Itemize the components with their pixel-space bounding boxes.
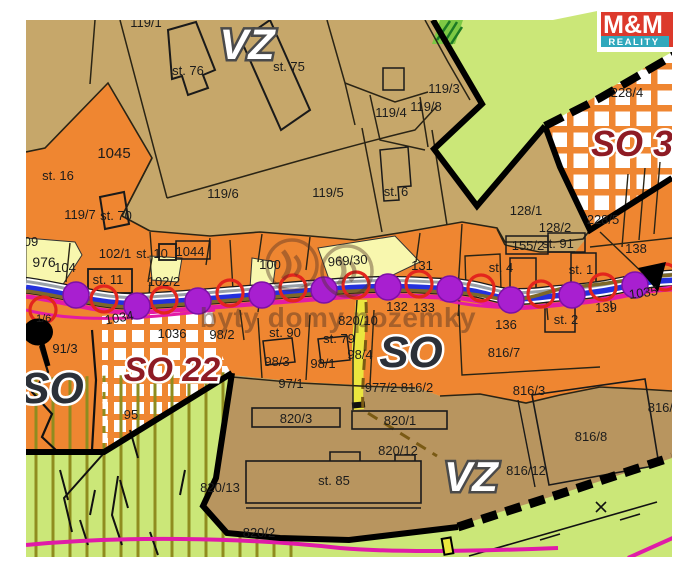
svg-text:139: 139 — [595, 300, 617, 315]
svg-text:138: 138 — [625, 241, 647, 256]
svg-text:1/6: 1/6 — [36, 313, 51, 325]
svg-text:M&M: M&M — [603, 11, 663, 39]
svg-text:REALITY: REALITY — [608, 37, 659, 48]
svg-text:820/1: 820/1 — [384, 413, 417, 428]
svg-text:VZ: VZ — [444, 453, 499, 500]
svg-text:st. 6: st. 6 — [384, 184, 409, 199]
svg-text:st. 1: st. 1 — [569, 262, 594, 277]
svg-text:119/6: 119/6 — [207, 186, 239, 201]
svg-text:119/3: 119/3 — [428, 81, 460, 96]
svg-text:133: 133 — [413, 300, 435, 315]
svg-text:128/1: 128/1 — [510, 203, 543, 218]
svg-text:st. 10: st. 10 — [136, 246, 168, 261]
svg-text:820/2: 820/2 — [243, 525, 276, 540]
svg-text:100: 100 — [259, 257, 281, 272]
svg-text:1045: 1045 — [97, 145, 130, 162]
svg-text:1036: 1036 — [158, 326, 187, 341]
svg-text:SO 22: SO 22 — [124, 351, 220, 389]
svg-text:131: 131 — [411, 258, 433, 273]
svg-text:98/4: 98/4 — [347, 347, 372, 362]
svg-text:816/2: 816/2 — [401, 380, 434, 395]
svg-text:st. 90: st. 90 — [269, 325, 301, 340]
svg-text:98/3: 98/3 — [264, 354, 289, 369]
svg-text:SO: SO — [20, 364, 84, 413]
svg-text:98/2: 98/2 — [209, 327, 234, 342]
svg-text:104: 104 — [54, 260, 76, 275]
svg-text:820/12: 820/12 — [378, 443, 418, 458]
svg-text:st. 70: st. 70 — [100, 208, 132, 223]
svg-text:820/13: 820/13 — [200, 480, 240, 495]
svg-text:228/5: 228/5 — [587, 212, 620, 227]
svg-text:VZ: VZ — [220, 21, 277, 69]
svg-text:128/2: 128/2 — [539, 220, 572, 235]
svg-text:98/1: 98/1 — [310, 356, 335, 371]
svg-text:119/7: 119/7 — [64, 207, 96, 222]
svg-text:119/8: 119/8 — [410, 99, 442, 114]
svg-text:SO 36: SO 36 — [591, 123, 686, 164]
svg-text:119/4: 119/4 — [375, 105, 407, 120]
svg-text:st. 75: st. 75 — [273, 59, 305, 74]
svg-text:976: 976 — [32, 254, 56, 270]
svg-text:st. 16: st. 16 — [42, 168, 74, 183]
svg-text:155/2: 155/2 — [512, 238, 545, 253]
svg-text:st. 76: st. 76 — [172, 63, 204, 78]
svg-text:st. 11: st. 11 — [93, 272, 124, 287]
svg-text:816/12: 816/12 — [506, 463, 546, 478]
svg-text:820/3: 820/3 — [280, 411, 313, 426]
svg-text:119/5: 119/5 — [312, 185, 344, 200]
svg-text:st. 2: st. 2 — [554, 312, 579, 327]
svg-text:95: 95 — [124, 407, 138, 422]
svg-text:st. 79: st. 79 — [323, 331, 355, 346]
svg-text:816/3: 816/3 — [513, 383, 546, 398]
svg-text:st. 85: st. 85 — [318, 473, 350, 488]
svg-text:969/30: 969/30 — [327, 252, 368, 270]
svg-text:136: 136 — [495, 317, 517, 332]
svg-text:816/7: 816/7 — [488, 345, 521, 360]
svg-text:102/1: 102/1 — [99, 246, 132, 261]
svg-text:91/3: 91/3 — [52, 341, 77, 356]
svg-text:1044: 1044 — [176, 244, 205, 259]
svg-text:st. 91: st. 91 — [542, 236, 574, 251]
svg-text:st. 4: st. 4 — [489, 260, 514, 275]
svg-text:977/2: 977/2 — [365, 380, 398, 395]
svg-text:97/1: 97/1 — [278, 376, 303, 391]
svg-text:132: 132 — [386, 299, 408, 314]
svg-text:816/8: 816/8 — [575, 429, 608, 444]
svg-text:102/2: 102/2 — [148, 274, 181, 289]
svg-text:228/4: 228/4 — [611, 85, 644, 100]
svg-text:SO: SO — [379, 328, 443, 377]
svg-text:820/10: 820/10 — [338, 313, 378, 328]
